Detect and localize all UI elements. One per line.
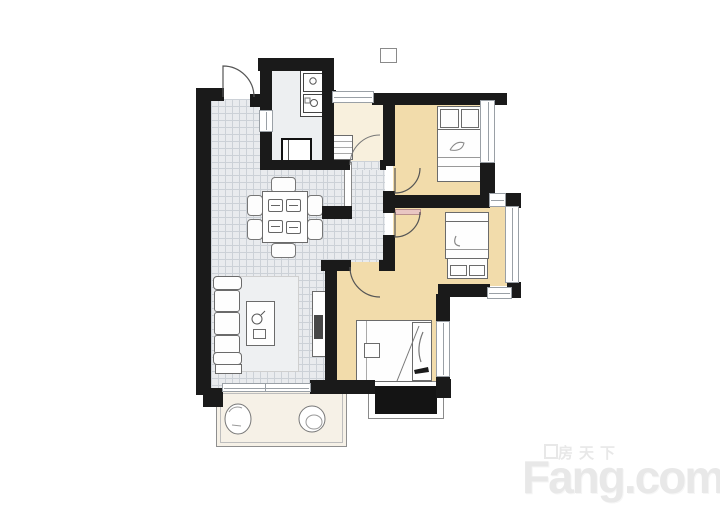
stove-knob-icon bbox=[305, 98, 310, 103]
bedroom1-door-swing bbox=[395, 168, 420, 193]
stove-burner-icon bbox=[311, 100, 318, 107]
sink-faucet-icon bbox=[310, 78, 316, 84]
entrance-door-swing bbox=[223, 66, 254, 97]
bed3-wardrobe-rail bbox=[419, 332, 423, 362]
bedroom3-door-swing bbox=[350, 267, 380, 297]
teapot-spout bbox=[261, 311, 265, 315]
watermark-english: Fang.com bbox=[522, 450, 720, 504]
bed1-leaf-decor bbox=[450, 142, 464, 150]
floor-plan-image: 房天下 Fang.com bbox=[0, 0, 720, 512]
bedroom2-door-swing bbox=[395, 212, 420, 237]
teapot-icon bbox=[252, 314, 262, 324]
washing-machine bbox=[225, 404, 251, 434]
bed3-dark-item bbox=[414, 367, 429, 374]
bed2-pillow-decor bbox=[455, 236, 460, 246]
fang-watermark: 房天下 Fang.com bbox=[522, 436, 718, 506]
bathroom-door-swing bbox=[350, 135, 380, 165]
